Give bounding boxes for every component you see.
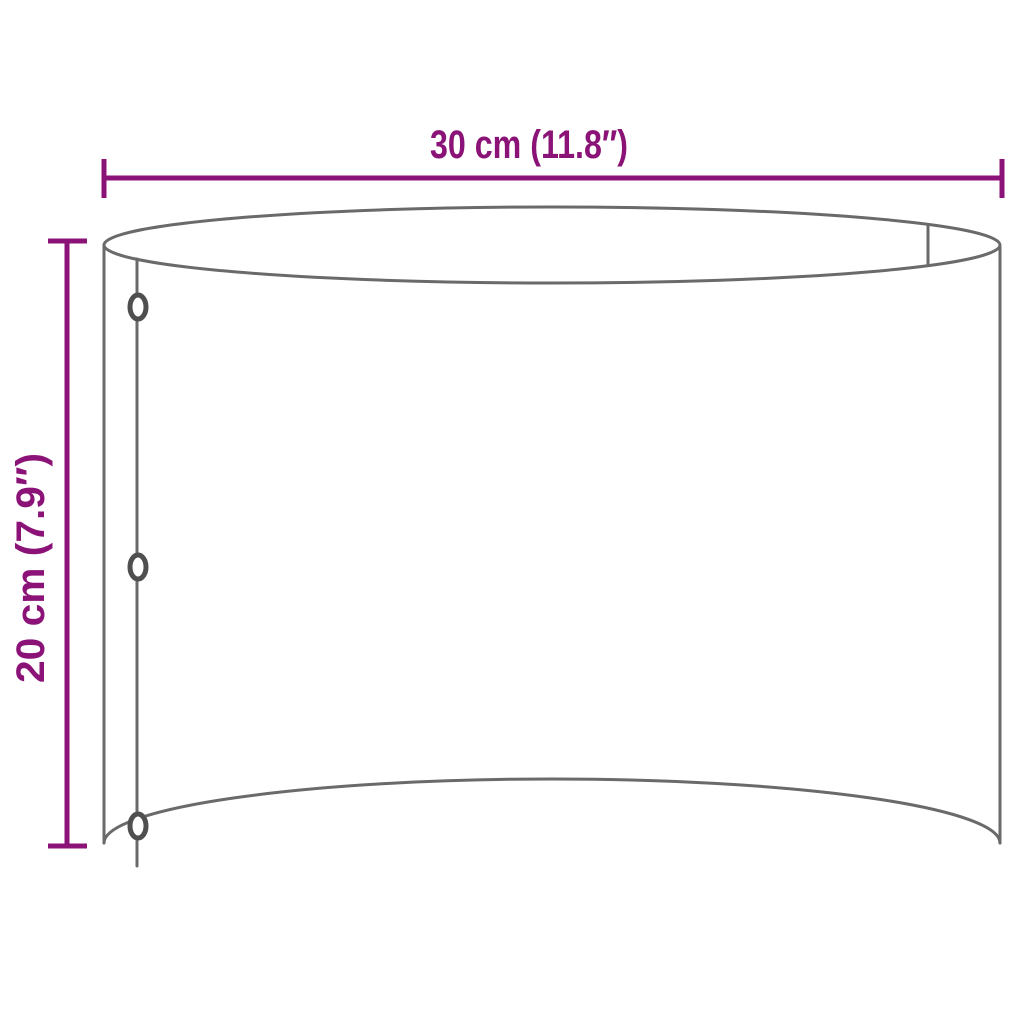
- seam-rivet-top: [130, 295, 146, 319]
- planter-outline-group: [104, 207, 1000, 866]
- height-dimension-label: 20 cm (7.9″): [9, 453, 53, 683]
- width-dimension-group: 30 cm (11.8″): [104, 123, 1002, 198]
- height-dimension-group: 20 cm (7.9″): [9, 241, 87, 846]
- diagram-canvas: 30 cm (11.8″) 20 cm (7.9″): [0, 0, 1024, 1024]
- planter-top-rim-ellipse: [104, 207, 1000, 283]
- width-dimension-label: 30 cm (11.8″): [430, 123, 628, 167]
- planter-dimension-diagram: 30 cm (11.8″) 20 cm (7.9″): [0, 0, 1024, 1024]
- planter-bottom-edge: [104, 779, 1000, 843]
- seam-rivet-middle: [130, 555, 146, 579]
- seam-rivet-bottom: [130, 814, 146, 838]
